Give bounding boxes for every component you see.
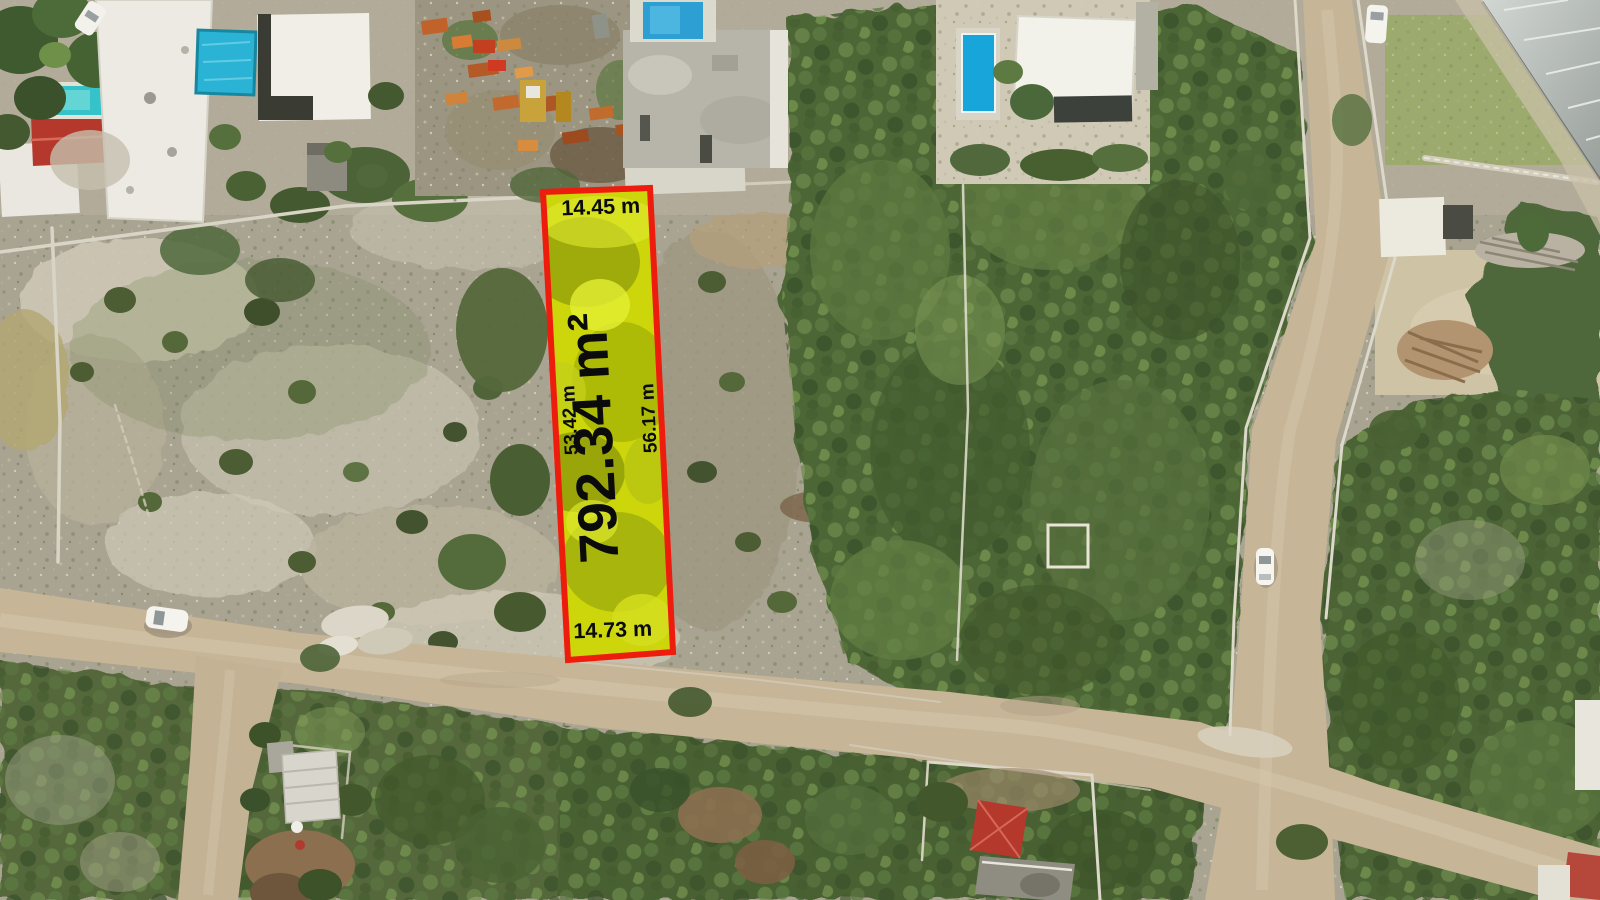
house-white-flat-roof bbox=[96, 0, 212, 222]
car-on-right-road bbox=[1254, 548, 1278, 588]
aerial-photo-canvas: 14.45 m 792.34 m² 53.42 m 56.17 m 14.73 … bbox=[0, 0, 1600, 900]
parcel-side-top-label: 14.45 m bbox=[561, 194, 641, 221]
car-top-right bbox=[1365, 4, 1389, 43]
aerial-photo: 14.45 m 792.34 m² 53.42 m 56.17 m 14.73 … bbox=[0, 0, 1600, 900]
blue-tarp-pool bbox=[196, 30, 256, 95]
parcel-side-right-label: 56.17 m bbox=[637, 383, 662, 454]
parcel-side-bottom-label: 14.73 m bbox=[573, 617, 653, 644]
parcel-side-left-label: 53.42 m bbox=[558, 385, 583, 456]
pool-property-top-right bbox=[936, 0, 1158, 184]
